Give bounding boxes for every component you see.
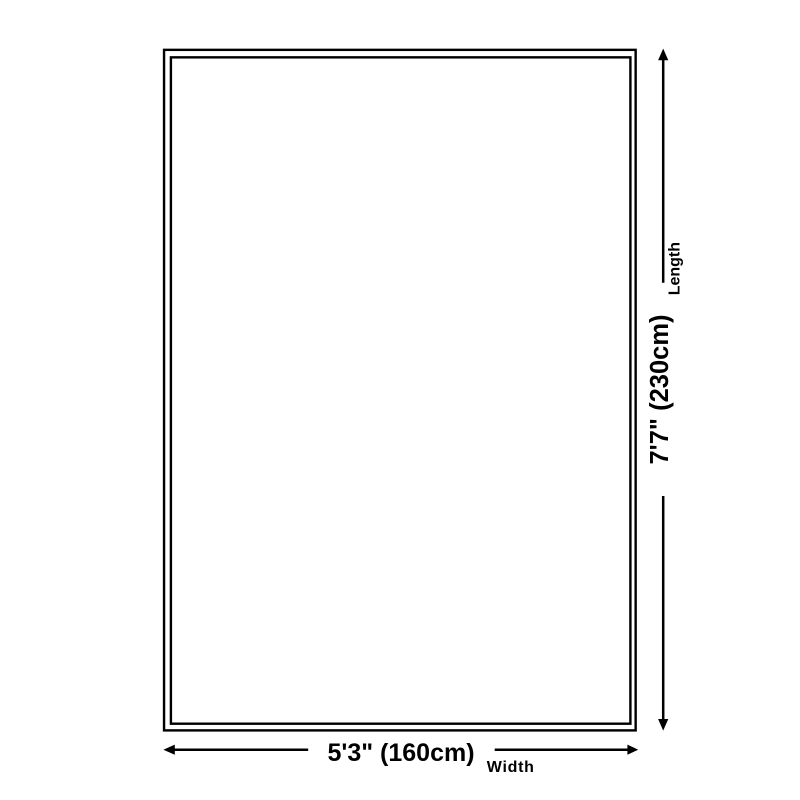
svg-text:Length: Length [667,242,684,295]
svg-text:7'7" (230cm): 7'7" (230cm) [646,315,674,465]
svg-text:Width: Width [487,759,535,776]
svg-text:5'3" (160cm): 5'3" (160cm) [328,739,475,767]
